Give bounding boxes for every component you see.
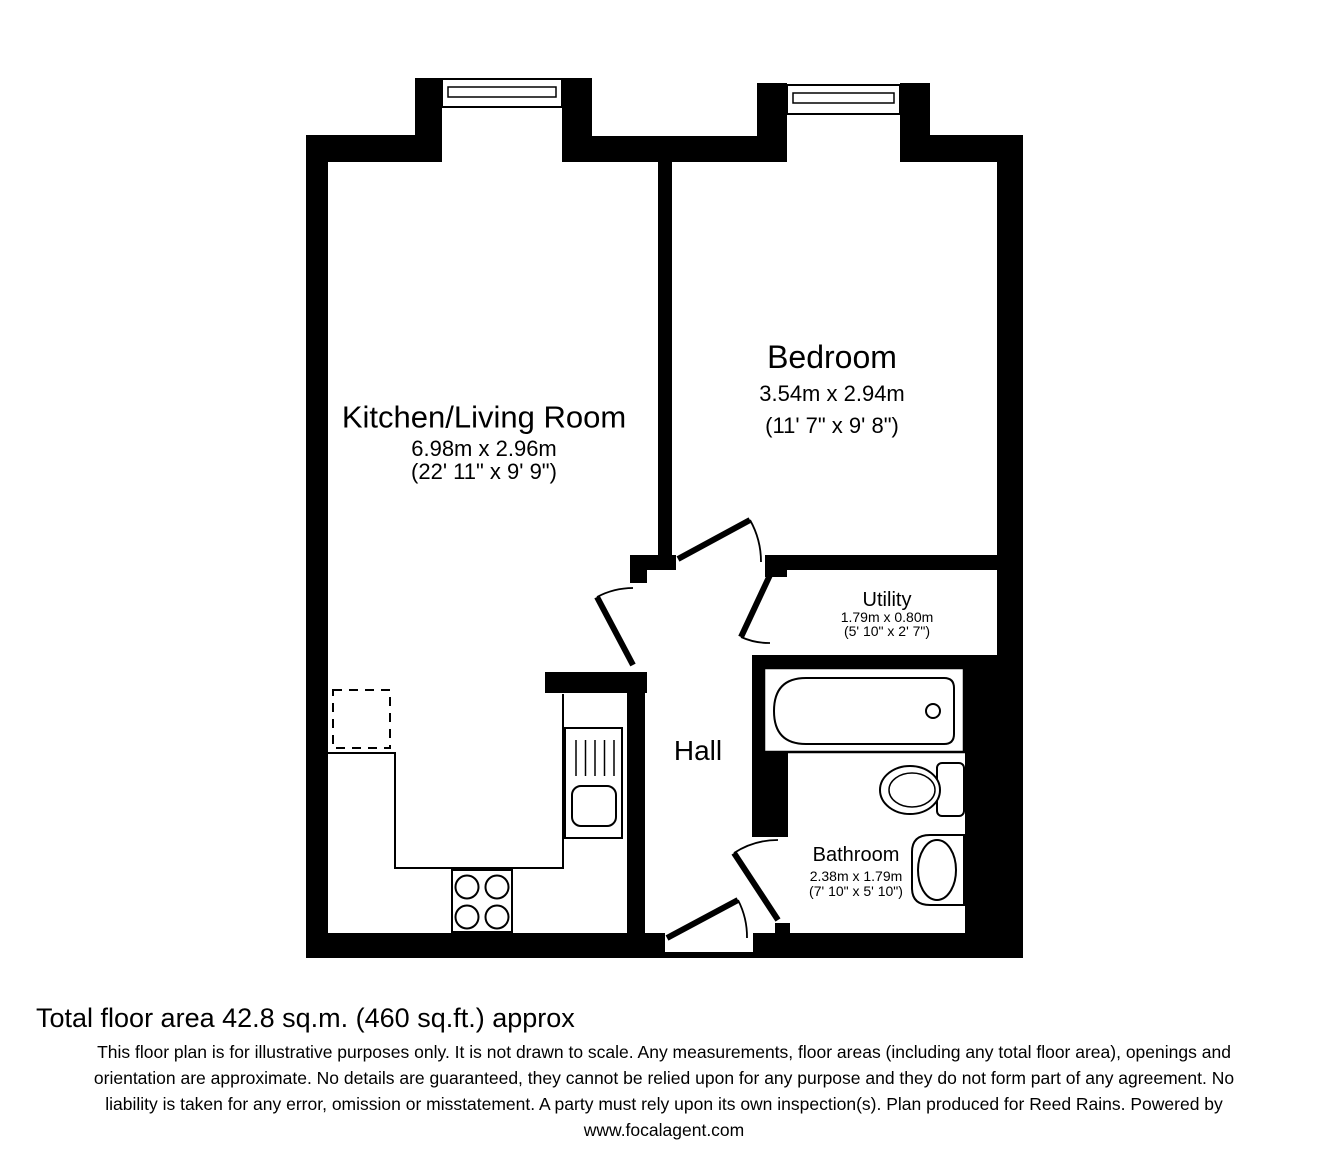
wall-stub-hall-top-left-h — [630, 555, 676, 570]
wall-top-middle — [592, 136, 757, 162]
floorplan-drawing — [0, 0, 1328, 1151]
window-kitchen-icon — [442, 79, 562, 107]
kitchen-door-swing-icon — [597, 588, 633, 665]
bedroom-dims-metric: 3.54m x 2.94m — [759, 383, 905, 405]
bath-icon — [764, 668, 964, 752]
hob-icon — [452, 870, 512, 932]
bathroom-door-swing-icon — [734, 840, 778, 920]
disclaimer-line-3: liability is taken for any error, omissi… — [0, 1096, 1328, 1114]
kitchen-sink-icon — [565, 728, 622, 838]
wall-bay-left-pillar-a — [415, 78, 442, 162]
wall-bottom-right — [753, 933, 1023, 958]
disclaimer-line-4: www.focalagent.com — [0, 1122, 1328, 1140]
bedroom-door-swing-icon — [678, 520, 761, 562]
toilet-icon — [880, 763, 964, 816]
kitchen-living-room-label: Kitchen/Living Room — [342, 402, 626, 433]
window-bedroom-icon — [787, 85, 900, 114]
kitchen-living-room-dims-imperial: (22' 11" x 9' 9") — [411, 461, 557, 483]
wall-kitchen-bedroom-divider — [658, 161, 672, 557]
wall-kitchen-east-lower — [627, 693, 645, 933]
entry-threshold-line — [665, 952, 753, 958]
wall-bay-right-pillar-b — [900, 83, 930, 162]
wall-bathroom-right — [965, 667, 999, 933]
wall-utility-bottom — [752, 655, 1000, 668]
wall-bay-right-pillar-a — [757, 83, 787, 162]
total-floor-area-text: Total floor area 42.8 sq.m. (460 sq.ft.)… — [36, 1003, 575, 1034]
appliance-space-icon — [333, 690, 390, 748]
bathroom-label: Bathroom — [813, 845, 900, 865]
disclaimer-line-1: This floor plan is for illustrative purp… — [0, 1044, 1328, 1062]
bedroom-label: Bedroom — [767, 341, 897, 373]
floorplan-page: Kitchen/Living Room 6.98m x 2.96m (22' 1… — [0, 0, 1328, 1151]
wash-basin-icon — [912, 835, 964, 905]
bedroom-dims-imperial: (11' 7" x 9' 8") — [765, 415, 899, 437]
kitchen-living-room-dims-metric: 6.98m x 2.96m — [411, 438, 557, 460]
utility-dims-metric: 1.79m x 0.80m — [841, 610, 934, 624]
wall-stub-hall-top-left-v — [630, 570, 647, 583]
wall-stub-kitchen-hall-h — [545, 672, 647, 693]
hall-label: Hall — [674, 737, 722, 765]
wall-right — [997, 135, 1023, 958]
wall-left — [306, 135, 328, 958]
wall-bottom-left — [306, 933, 665, 958]
entry-door-swing-icon — [667, 900, 747, 938]
utility-door-swing-icon — [741, 575, 770, 643]
bathroom-dims-metric: 2.38m x 1.79m — [810, 869, 903, 883]
bathroom-dims-imperial: (7' 10" x 5' 10") — [809, 884, 903, 898]
utility-dims-imperial: (5' 10" x 2' 7") — [844, 624, 930, 638]
wall-top-left — [306, 135, 415, 162]
wall-utility-top — [765, 555, 1000, 570]
utility-label: Utility — [863, 590, 912, 610]
wall-bay-left-pillar-b — [562, 78, 592, 162]
disclaimer-line-2: orientation are approximate. No details … — [0, 1070, 1328, 1088]
counter-edge — [328, 694, 563, 868]
walls — [306, 78, 1023, 958]
